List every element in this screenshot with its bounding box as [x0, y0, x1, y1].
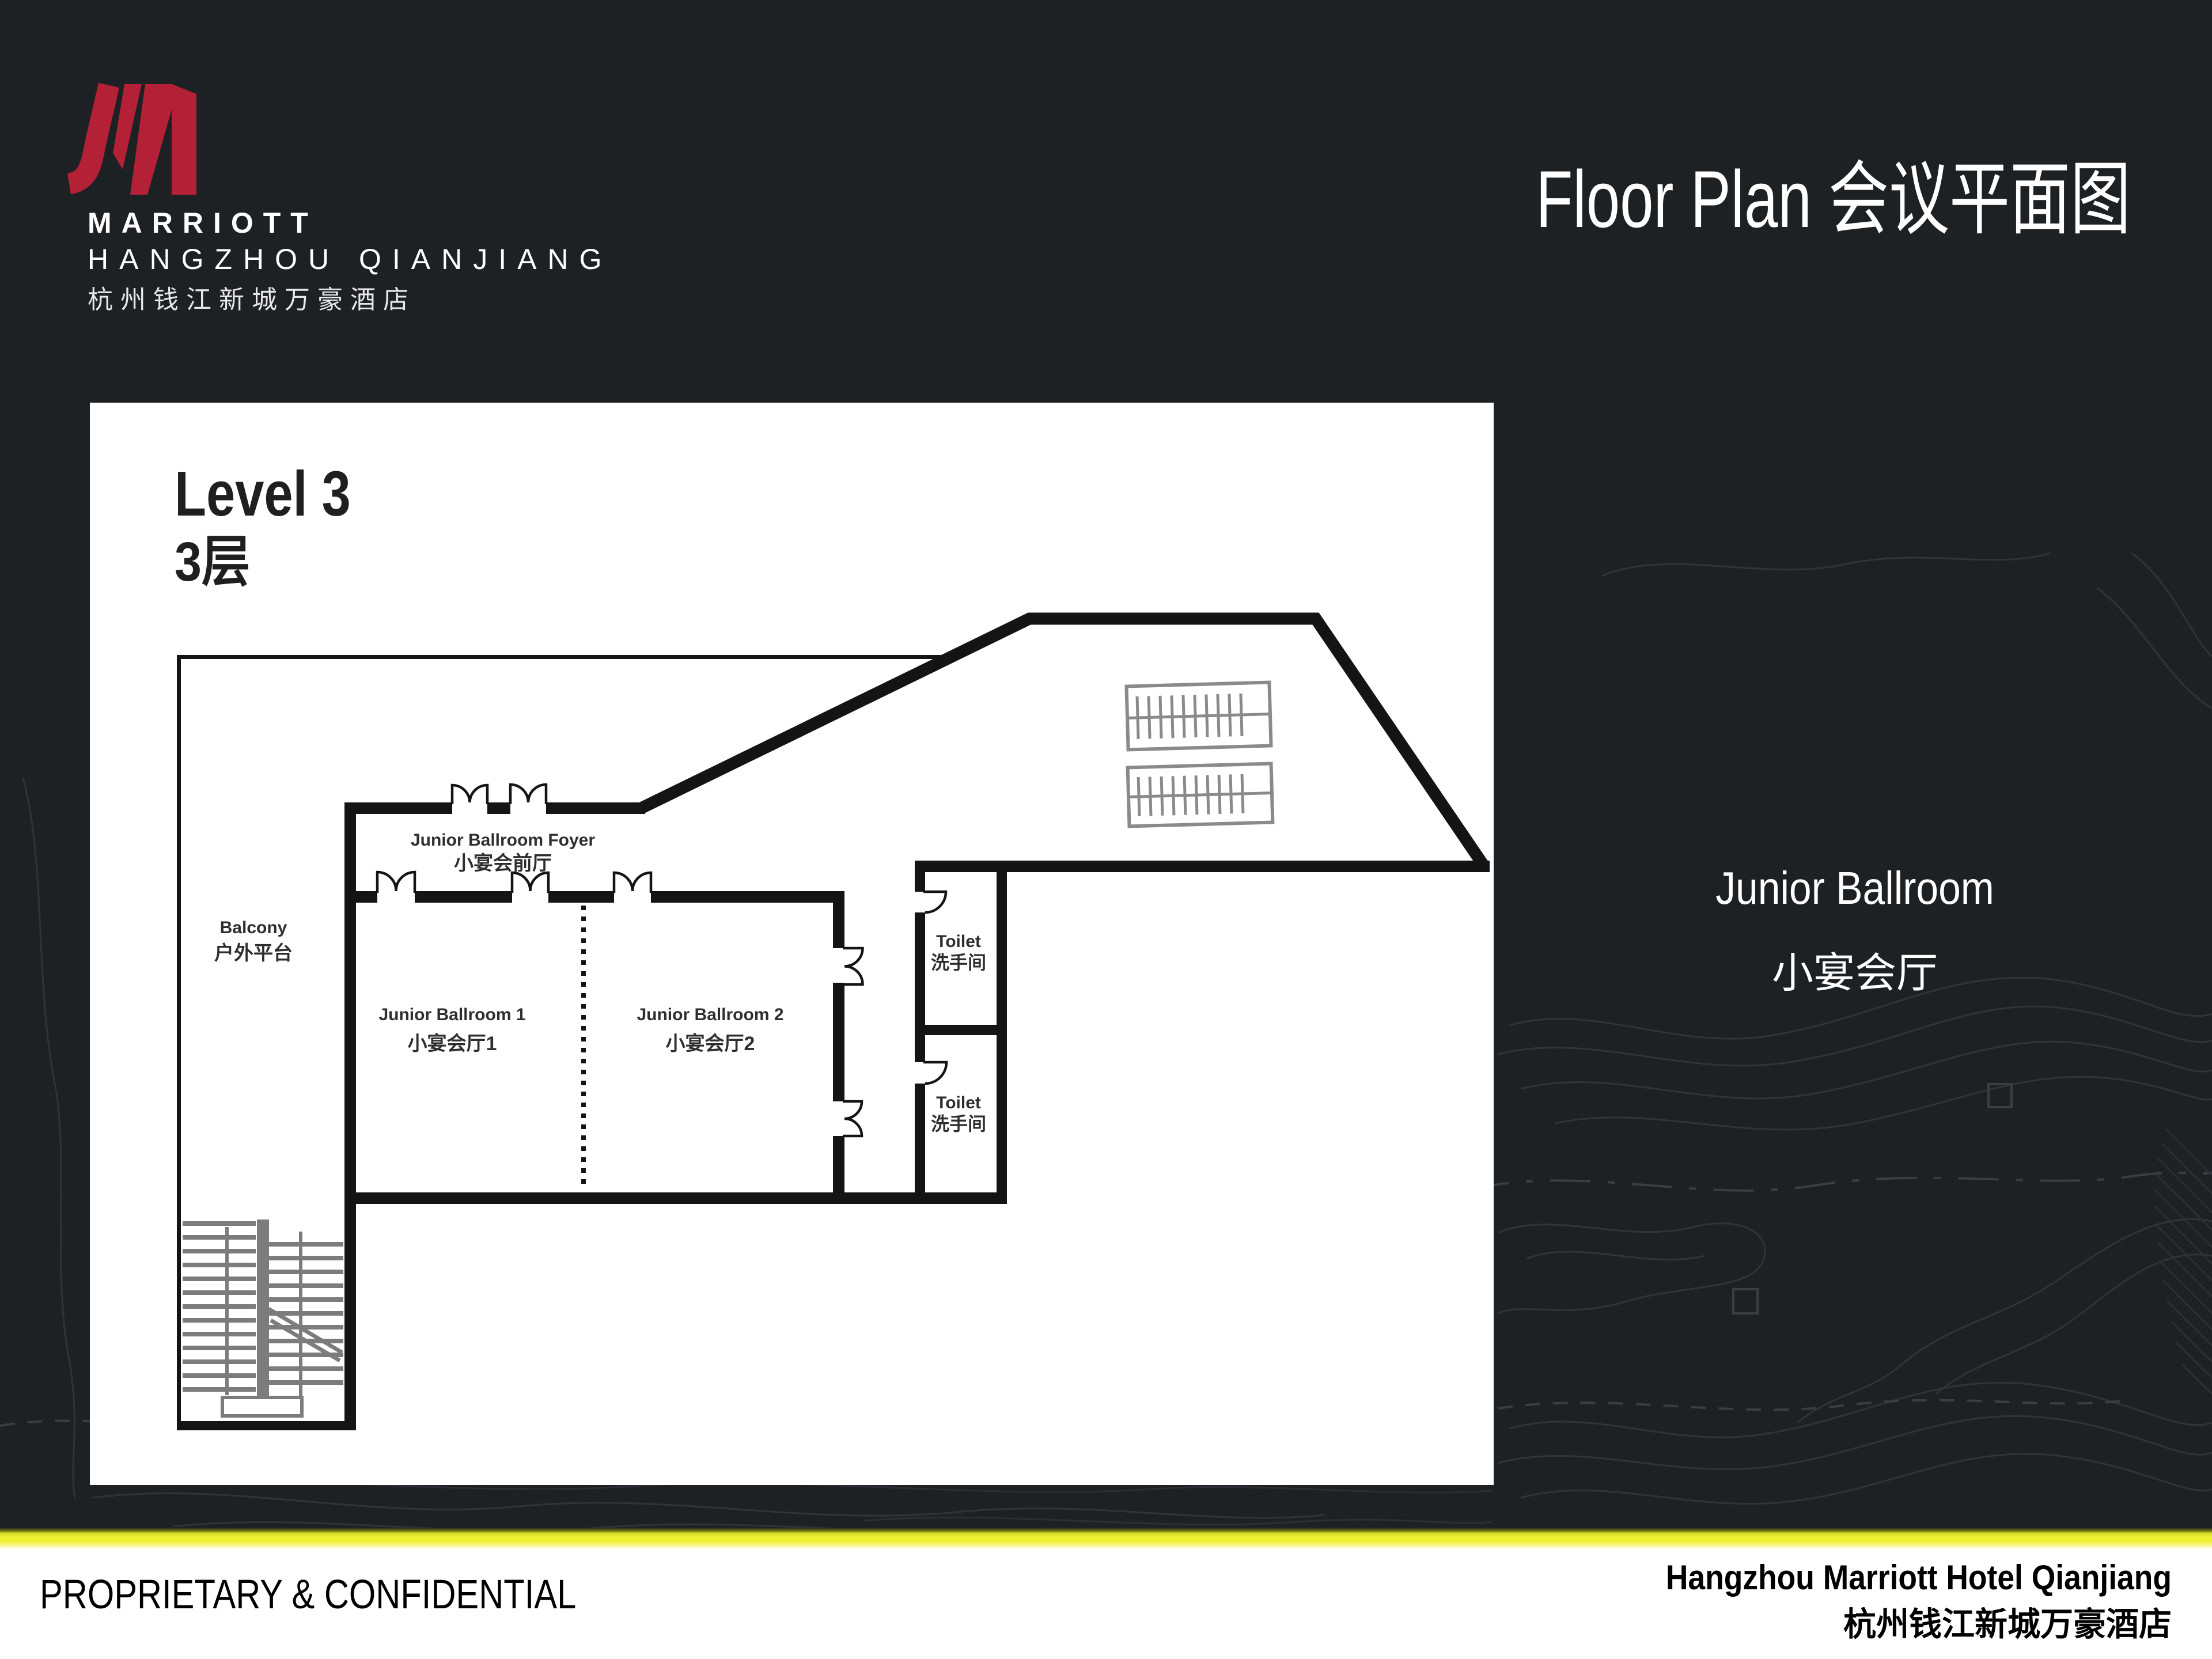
svg-text:小宴会前厅: 小宴会前厅	[454, 852, 552, 874]
svg-text:3层: 3层	[175, 531, 250, 593]
svg-text:洗手间: 洗手间	[931, 952, 986, 973]
svg-text:Toilet: Toilet	[936, 1093, 981, 1112]
svg-text:Junior Ballroom 2: Junior Ballroom 2	[637, 1005, 783, 1024]
svg-text:Balcony: Balcony	[220, 918, 287, 937]
svg-text:Level 3: Level 3	[175, 459, 351, 529]
svg-text:小宴会厅2: 小宴会厅2	[666, 1032, 755, 1055]
svg-text:洗手间: 洗手间	[931, 1113, 986, 1134]
svg-text:Toilet: Toilet	[936, 932, 981, 951]
svg-text:Junior Ballroom 1: Junior Ballroom 1	[378, 1005, 525, 1024]
svg-text:小宴会厅1: 小宴会厅1	[408, 1032, 497, 1055]
svg-text:户外平台: 户外平台	[214, 942, 293, 964]
svg-text:Junior Ballroom Foyer: Junior Ballroom Foyer	[411, 831, 595, 850]
